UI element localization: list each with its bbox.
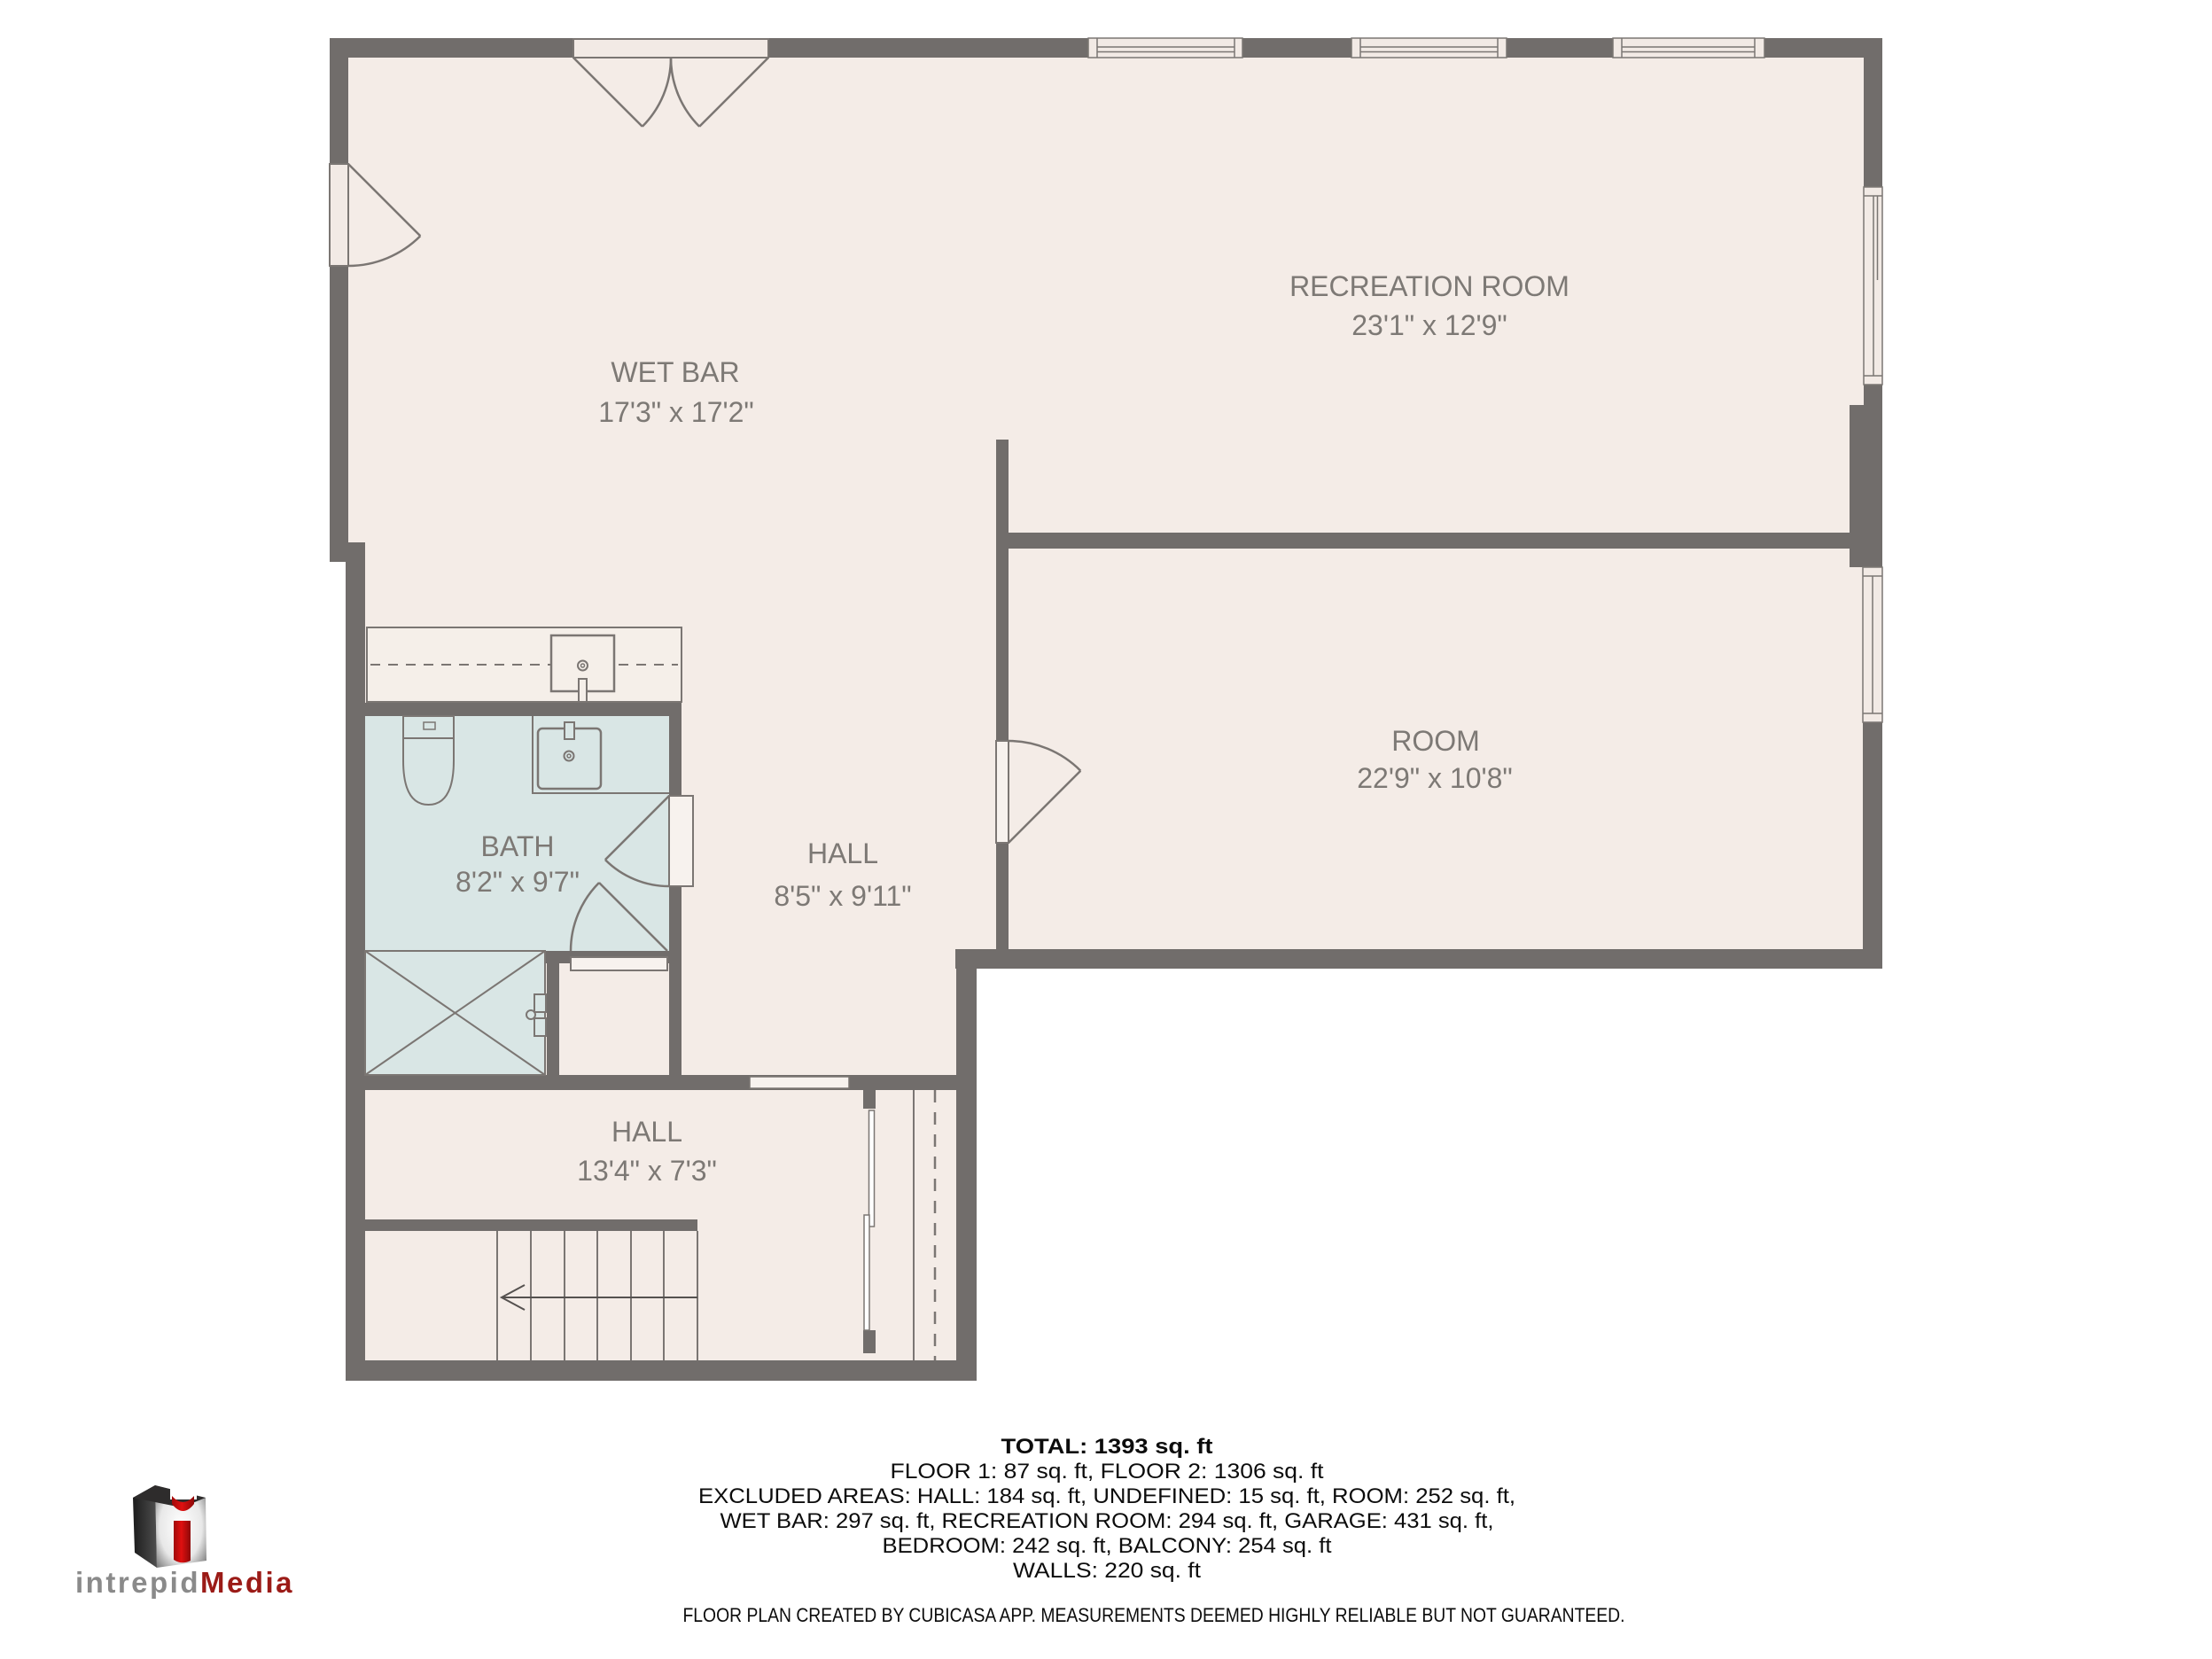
svg-text:EXCLUDED AREAS: HALL: 184 sq.: EXCLUDED AREAS: HALL: 184 sq. ft, UNDEFI… — [698, 1484, 1515, 1508]
svg-text:RECREATION ROOM: RECREATION ROOM — [1289, 270, 1569, 302]
svg-text:ROOM: ROOM — [1391, 725, 1480, 757]
svg-text:TOTAL: 1393 sq. ft: TOTAL: 1393 sq. ft — [1001, 1435, 1213, 1459]
svg-text:23'1" x 12'9": 23'1" x 12'9" — [1351, 309, 1507, 341]
svg-text:8'2" x 9'7": 8'2" x 9'7" — [456, 866, 580, 898]
svg-text:intrepidMedia: intrepidMedia — [75, 1566, 294, 1599]
svg-text:8'5" x 9'11": 8'5" x 9'11" — [774, 880, 911, 912]
svg-text:WET BAR: WET BAR — [611, 356, 739, 388]
svg-text:HALL: HALL — [807, 837, 878, 869]
svg-text:17'3" x 17'2": 17'3" x 17'2" — [598, 396, 754, 428]
svg-text:22'9" x 10'8": 22'9" x 10'8" — [1357, 762, 1513, 794]
svg-text:WALLS: 220 sq. ft: WALLS: 220 sq. ft — [1013, 1559, 1201, 1583]
svg-text:FLOOR 1: 87 sq. ft, FLOOR 2: 1: FLOOR 1: 87 sq. ft, FLOOR 2: 1306 sq. ft — [891, 1460, 1324, 1484]
svg-text:13'4" x 7'3": 13'4" x 7'3" — [577, 1155, 717, 1187]
svg-text:BEDROOM: 242 sq. ft, BALCONY:: BEDROOM: 242 sq. ft, BALCONY: 254 sq. ft — [883, 1534, 1332, 1558]
svg-text:FLOOR PLAN CREATED BY CUBICASA: FLOOR PLAN CREATED BY CUBICASA APP. MEAS… — [683, 1604, 1625, 1626]
svg-text:HALL: HALL — [611, 1116, 682, 1148]
svg-text:BATH: BATH — [481, 830, 555, 862]
svg-text:WET BAR: 297 sq. ft, RECREATIO: WET BAR: 297 sq. ft, RECREATION ROOM: 29… — [720, 1509, 1494, 1533]
